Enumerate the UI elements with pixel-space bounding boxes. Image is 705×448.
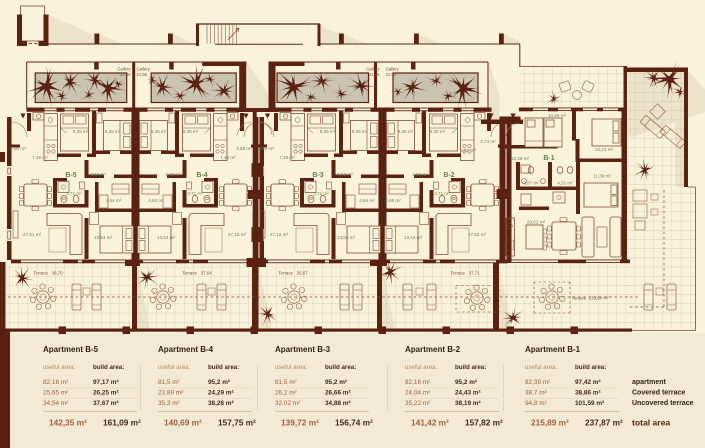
- svg-text:11,39 m²: 11,39 m²: [593, 174, 611, 179]
- svg-text:25,65 m²: 25,65 m²: [43, 390, 68, 397]
- svg-text:139,72 m²: 139,72 m²: [281, 418, 319, 428]
- svg-text:24,29 m²: 24,29 m²: [208, 390, 234, 397]
- svg-text:13,54 m²: 13,54 m²: [94, 235, 113, 240]
- svg-text:Covered terrace: Covered terrace: [632, 390, 685, 397]
- svg-text:useful area:: useful area:: [525, 364, 558, 371]
- svg-text:27,61 m²: 27,61 m²: [23, 232, 42, 237]
- svg-text:82,16 m²: 82,16 m²: [43, 379, 68, 386]
- svg-text:38,86 m²: 38,86 m²: [575, 390, 601, 397]
- svg-text:Gallery: Gallery: [137, 67, 151, 72]
- svg-text:3,71 m²: 3,71 m²: [313, 191, 329, 196]
- svg-text:141,42 m²: 141,42 m²: [411, 418, 449, 428]
- svg-text:build area:: build area:: [93, 364, 124, 371]
- svg-text:2,74 m²: 2,74 m²: [480, 139, 496, 144]
- svg-text:237,87 m²: 237,87 m²: [585, 418, 623, 428]
- svg-text:29,62 m²: 29,62 m²: [527, 220, 546, 225]
- svg-text:Apartment B-2: Apartment B-2: [405, 345, 461, 354]
- svg-text:9,35 m²: 9,35 m²: [105, 129, 121, 134]
- svg-text:81,5 m²: 81,5 m²: [275, 379, 297, 386]
- svg-text:B-4: B-4: [196, 172, 207, 179]
- svg-text:27,15 m²: 27,15 m²: [228, 232, 247, 237]
- svg-text:32.02 m²: 32.02 m²: [275, 400, 300, 407]
- svg-text:13,54 m²: 13,54 m²: [337, 235, 356, 240]
- svg-text:9,35 m²: 9,35 m²: [151, 129, 167, 134]
- svg-text:Apartment B-1: Apartment B-1: [525, 345, 581, 354]
- svg-text:Apartment B-5: Apartment B-5: [43, 345, 99, 354]
- svg-text:Terrace 37,64: Terrace 37,64: [182, 271, 212, 276]
- svg-text:9,35 m²: 9,35 m²: [183, 129, 199, 134]
- svg-text:10,24 m²: 10,24 m²: [595, 147, 614, 152]
- svg-text:95,2 m²: 95,2 m²: [208, 379, 230, 386]
- svg-text:95,2 m²: 95,2 m²: [325, 379, 347, 386]
- svg-text:4,64 m²: 4,64 m²: [106, 198, 122, 203]
- svg-text:27,62 m²: 27,62 m²: [468, 232, 487, 237]
- svg-text:B-5: B-5: [65, 172, 76, 179]
- svg-text:10,58 m²: 10,58 m²: [548, 113, 567, 118]
- svg-text:35,3 m²: 35,3 m²: [158, 400, 180, 407]
- svg-text:build area:: build area:: [325, 364, 356, 371]
- svg-text:21.55: 21.55: [137, 72, 148, 77]
- svg-text:81,5 m²: 81,5 m²: [158, 379, 180, 386]
- svg-text:9,35 m²: 9,35 m²: [320, 129, 336, 134]
- svg-text:157,82 m²: 157,82 m²: [465, 418, 503, 428]
- svg-text:B-3: B-3: [312, 172, 323, 179]
- svg-text:build area:: build area:: [455, 364, 486, 371]
- svg-text:13,54 m²: 13,54 m²: [404, 235, 423, 240]
- svg-text:34,54 m²: 34,54 m²: [43, 400, 68, 407]
- svg-text:215,89 m²: 215,89 m²: [531, 418, 569, 428]
- svg-text:82,16 m²: 82,16 m²: [405, 379, 430, 386]
- svg-text:B-1: B-1: [543, 155, 554, 162]
- svg-text:82,39 m²: 82,39 m²: [525, 379, 550, 386]
- svg-text:2,58 m²: 2,58 m²: [258, 146, 274, 151]
- svg-text:34,88 m²: 34,88 m²: [325, 400, 351, 407]
- svg-text:apartment: apartment: [632, 379, 667, 386]
- svg-text:161,09 m²: 161,09 m²: [103, 418, 141, 428]
- svg-text:38,26 m²: 38,26 m²: [208, 400, 234, 407]
- svg-text:useful area:: useful area:: [43, 364, 76, 371]
- svg-text:build area:: build area:: [208, 364, 239, 371]
- svg-text:4,66 m²: 4,66 m²: [385, 198, 401, 203]
- svg-text:Uncovered terrace: Uncovered terrace: [632, 400, 694, 407]
- svg-text:3,68 m²: 3,68 m²: [165, 172, 181, 177]
- svg-text:140,69 m²: 140,69 m²: [164, 418, 202, 428]
- svg-text:Gallery: Gallery: [386, 67, 400, 72]
- svg-text:3,68 m²: 3,68 m²: [412, 172, 428, 177]
- svg-text:157,75 m²: 157,75 m²: [218, 418, 256, 428]
- svg-text:21,55: 21,55: [369, 72, 380, 77]
- svg-text:12,38 m²: 12,38 m²: [511, 156, 530, 161]
- svg-text:Apartment B-3: Apartment B-3: [275, 345, 331, 354]
- svg-text:4,64 m²: 4,64 m²: [148, 198, 164, 203]
- svg-text:Terrace 133,50 m²: Terrace 133,50 m²: [572, 296, 609, 301]
- svg-text:27,15 m²: 27,15 m²: [270, 232, 289, 237]
- svg-text:Terrace 36,67: Terrace 36,67: [278, 271, 308, 276]
- svg-text:95,2 m²: 95,2 m²: [455, 379, 477, 386]
- svg-text:useful area:: useful area:: [405, 364, 438, 371]
- svg-text:Terrace 37,71: Terrace 37,71: [450, 271, 480, 276]
- svg-text:3,68 m²: 3,68 m²: [337, 172, 353, 177]
- svg-text:4,31 m²: 4,31 m²: [557, 181, 573, 186]
- svg-text:B-2: B-2: [443, 172, 454, 179]
- svg-text:9,35 m²: 9,35 m²: [73, 129, 89, 134]
- svg-text:97,17 m²: 97,17 m²: [93, 379, 119, 386]
- svg-text:26,2 m²: 26,2 m²: [275, 390, 297, 397]
- svg-text:Apartment B-4: Apartment B-4: [158, 345, 214, 354]
- svg-text:101,59 m²: 101,59 m²: [575, 400, 604, 407]
- svg-text:useful area:: useful area:: [158, 364, 191, 371]
- svg-text:3,87 m²: 3,87 m²: [523, 181, 539, 186]
- svg-text:26,25 m²: 26,25 m²: [93, 390, 119, 397]
- svg-text:3,71 m²: 3,71 m²: [187, 191, 203, 196]
- svg-text:26,66 m²: 26,66 m²: [325, 390, 351, 397]
- svg-text:24,04 m²: 24,04 m²: [405, 390, 430, 397]
- svg-text:35,22 m²: 35,22 m²: [405, 400, 430, 407]
- svg-text:24,43 m²: 24,43 m²: [455, 390, 481, 397]
- svg-text:23,89 m²: 23,89 m²: [158, 390, 183, 397]
- svg-text:21.55: 21.55: [386, 72, 397, 77]
- svg-text:37,67 m²: 37,67 m²: [93, 400, 119, 407]
- svg-text:2,58 m²: 2,58 m²: [236, 146, 252, 151]
- svg-text:21,49: 21,49: [120, 72, 131, 77]
- svg-text:2,80 m²: 2,80 m²: [10, 146, 26, 151]
- svg-text:94,8 m²: 94,8 m²: [525, 400, 547, 407]
- svg-text:3,71 m²: 3,71 m²: [66, 191, 82, 196]
- svg-text:38,19 m²: 38,19 m²: [455, 400, 481, 407]
- svg-text:13,54 m²: 13,54 m²: [157, 235, 176, 240]
- svg-text:7,48 m²: 7,48 m²: [279, 155, 295, 160]
- svg-text:7,46 m²: 7,46 m²: [32, 155, 48, 160]
- svg-text:38,7 m²: 38,7 m²: [525, 390, 547, 397]
- svg-text:9,35 m²: 9,35 m²: [430, 129, 446, 134]
- svg-text:Gallery: Gallery: [366, 67, 380, 72]
- svg-text:9,35 m²: 9,35 m²: [352, 129, 368, 134]
- svg-text:4,66 m²: 4,66 m²: [359, 198, 375, 203]
- svg-text:3,71 m²: 3,71 m²: [434, 191, 450, 196]
- svg-text:7,48 m²: 7,48 m²: [220, 155, 236, 160]
- svg-text:156,74 m²: 156,74 m²: [335, 418, 373, 428]
- svg-text:total area: total area: [632, 418, 670, 428]
- svg-text:3,68 m²: 3,68 m²: [90, 172, 106, 177]
- svg-text:7,51 m²: 7,51 m²: [460, 148, 476, 153]
- svg-text:Terrace 38,70: Terrace 38,70: [33, 271, 63, 276]
- svg-text:142,35 m²: 142,35 m²: [49, 418, 87, 428]
- svg-text:97,42 m²: 97,42 m²: [575, 379, 601, 386]
- svg-text:useful area:: useful area:: [275, 364, 308, 371]
- svg-text:9,35 m²: 9,35 m²: [398, 129, 414, 134]
- svg-text:Gallery: Gallery: [117, 67, 131, 72]
- svg-text:build area:: build area:: [575, 364, 606, 371]
